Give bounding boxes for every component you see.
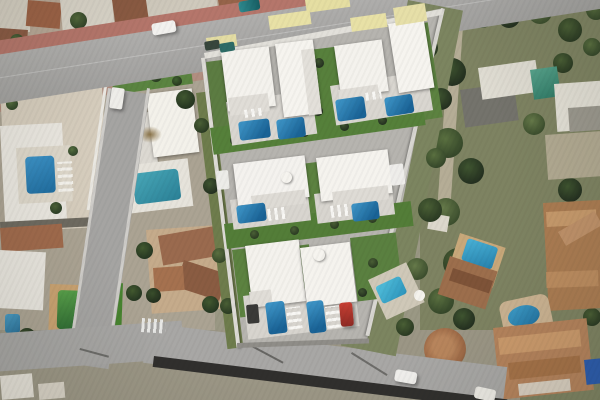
photo-vignette-overlay bbox=[0, 0, 600, 400]
aerial-photo bbox=[0, 0, 600, 400]
